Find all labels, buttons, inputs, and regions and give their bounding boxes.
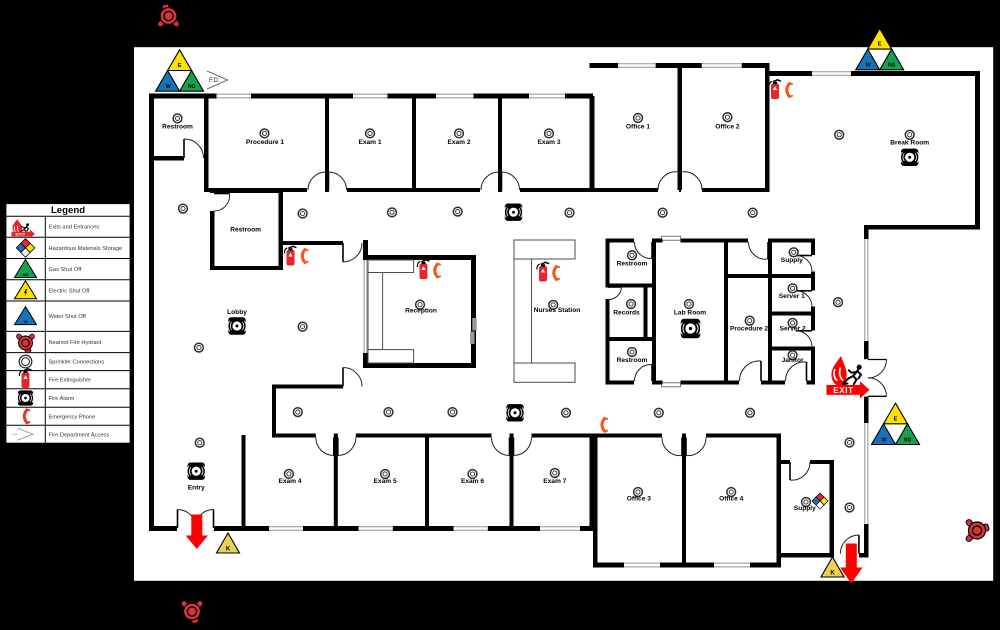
svg-text:Server 2: Server 2 — [780, 326, 806, 333]
svg-text:Exam 1: Exam 1 — [358, 139, 381, 146]
svg-text:Records: Records — [613, 310, 640, 317]
svg-text:Reception: Reception — [405, 308, 437, 315]
svg-text:Break Room: Break Room — [890, 140, 929, 147]
svg-text:Server 1: Server 1 — [779, 293, 805, 300]
svg-text:Lobby: Lobby — [227, 309, 247, 316]
svg-text:Nearest Fire Hydrant: Nearest Fire Hydrant — [49, 340, 102, 346]
svg-text:Restroom: Restroom — [617, 357, 648, 364]
svg-text:Gas Shut Off: Gas Shut Off — [49, 267, 82, 273]
svg-text:Exam 2: Exam 2 — [447, 139, 470, 146]
svg-text:Office 3: Office 3 — [627, 496, 652, 503]
svg-text:EXIT: EXIT — [15, 232, 25, 237]
svg-text:Supply: Supply — [781, 257, 803, 264]
svg-text:Procedure 1: Procedure 1 — [246, 139, 284, 146]
svg-text:Office 1: Office 1 — [626, 124, 651, 131]
svg-text:Sprinkler Connections: Sprinkler Connections — [49, 360, 105, 366]
svg-text:Water Shut Off: Water Shut Off — [49, 314, 87, 320]
svg-text:NG: NG — [23, 272, 29, 277]
svg-text:Exam 3: Exam 3 — [537, 139, 560, 146]
svg-text:Fire Alarm: Fire Alarm — [49, 396, 75, 402]
svg-text:Restroom: Restroom — [230, 227, 261, 234]
svg-text:Exam 4: Exam 4 — [278, 478, 301, 485]
svg-text:Exits and Entrances: Exits and Entrances — [49, 225, 100, 231]
svg-text:Lab Room: Lab Room — [674, 310, 706, 317]
svg-text:Exam 6: Exam 6 — [461, 478, 484, 485]
svg-text:Office 4: Office 4 — [719, 496, 744, 503]
svg-text:Procedure 2: Procedure 2 — [730, 326, 768, 333]
svg-text:Janitor: Janitor — [782, 357, 804, 364]
svg-text:Supply: Supply — [794, 505, 816, 512]
svg-text:Fire Department Access: Fire Department Access — [49, 432, 110, 438]
svg-text:Legend: Legend — [51, 205, 85, 216]
svg-text:Hazardous Materials Storage: Hazardous Materials Storage — [49, 246, 123, 252]
svg-text:Fire Extinguisher: Fire Extinguisher — [49, 378, 92, 384]
svg-text:Emergency Phone: Emergency Phone — [49, 414, 96, 420]
svg-text:Exam 7: Exam 7 — [543, 478, 566, 485]
svg-text:Electric Shut Off: Electric Shut Off — [49, 288, 90, 294]
svg-text:Restroom: Restroom — [617, 261, 648, 268]
svg-text:Office 2: Office 2 — [715, 124, 740, 131]
svg-text:Restroom: Restroom — [162, 124, 193, 131]
svg-text:W: W — [24, 319, 28, 324]
svg-text:Entry: Entry — [188, 485, 205, 492]
svg-text:Exam 5: Exam 5 — [374, 478, 397, 485]
svg-text:Nurses Station: Nurses Station — [534, 307, 581, 314]
